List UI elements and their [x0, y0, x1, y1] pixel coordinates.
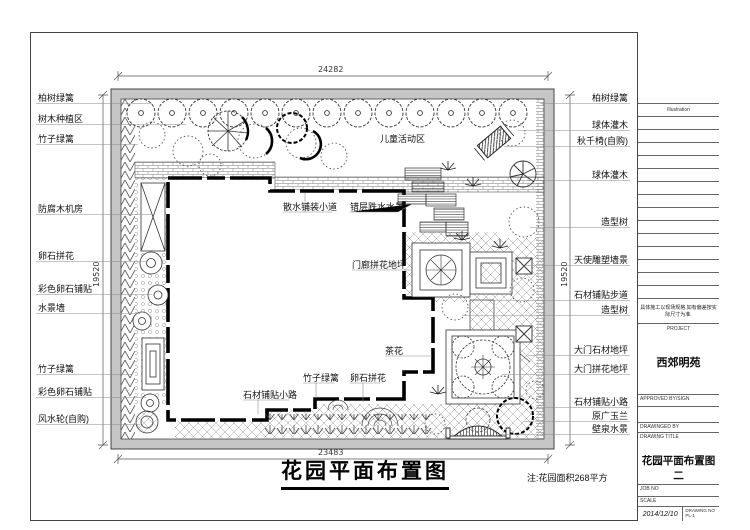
- construction-note: 具体施工以现场规格,如有偏差按实际尺寸为准.: [638, 299, 719, 324]
- illustration-label: Illustration: [638, 104, 719, 117]
- plan-label: 石材铺贴小路: [243, 390, 297, 400]
- project-name: 西郊明苑: [638, 354, 719, 370]
- drawing-no-value: PL-1: [685, 513, 695, 518]
- right-label: 石材铺贴小路: [574, 397, 628, 407]
- drawing-no-cell: DRAWING NO PL-1: [683, 507, 719, 521]
- right-label: 球体灌木: [592, 120, 628, 130]
- dim-right: 19520: [560, 262, 569, 287]
- plan-label: 门廊拼花地坪: [352, 260, 406, 270]
- area-note: 注:花园面积268平方: [527, 471, 608, 484]
- approved-by-label: APPROVED BY/SIGN: [638, 395, 719, 407]
- left-label: 水景墙: [38, 303, 65, 313]
- date-drawingno-row: 2014/12/10 DRAWING NO PL-1: [638, 507, 719, 521]
- left-label: 树木种植区: [38, 114, 83, 124]
- right-label: 造型树: [601, 305, 628, 315]
- left-label: 风水轮(自购): [38, 414, 89, 424]
- left-label: 竹子绿篱: [38, 134, 74, 144]
- sheet-border: [30, 32, 719, 521]
- left-label: 卵石拼花: [38, 251, 74, 261]
- right-label: 原广玉兰: [592, 411, 628, 421]
- right-label: 柏树绿篱: [592, 93, 628, 103]
- drawing-sheet: 柏树绿篱 树木种植区 竹子绿篱 防腐木机房 卵石拼花 彩色卵石铺贴 水景墙 竹子…: [0, 0, 750, 530]
- right-label: 造型树: [601, 217, 628, 227]
- project-cell: PROJECT 西郊明苑: [638, 324, 719, 395]
- right-label: 壁泉水景: [592, 424, 628, 434]
- scale-label: SCALE: [638, 497, 719, 507]
- right-label: 秋千椅(自购): [577, 136, 628, 146]
- right-label: 大门拼花地坪: [574, 364, 628, 374]
- dim-left: 19520: [92, 262, 101, 287]
- left-label: 防腐木机房: [38, 204, 83, 214]
- plan-label: 茶花: [385, 346, 403, 356]
- left-label: 彩色卵石铺贴: [38, 387, 92, 397]
- drawn-by-label: DRAWINGED BY: [638, 423, 719, 433]
- left-label: 柏树绿篱: [38, 93, 74, 103]
- play-area-label: 儿童活动区: [380, 134, 425, 144]
- right-label: 石材铺贴步道: [574, 290, 628, 300]
- dim-top: 24282: [318, 65, 343, 74]
- right-label: 天使雕塑墙景: [574, 255, 628, 265]
- approved-by-value: [638, 407, 719, 423]
- plan-label: 卵石拼花: [350, 373, 386, 383]
- job-no-label: JOB NO: [638, 485, 719, 497]
- title-block-blank: [638, 32, 719, 104]
- page-title: 花园平面布置图: [281, 455, 449, 490]
- left-label: 彩色卵石铺贴: [38, 284, 92, 294]
- drawing-title-label: DRAWING TITLE: [638, 433, 719, 441]
- right-label: 球体灌木: [592, 170, 628, 180]
- plan-label: 散水铺装小道: [283, 202, 337, 212]
- drawing-title-cell: DRAWING TITLE 花园平面布置图二: [638, 433, 719, 485]
- right-label: 大门石材地坪: [574, 345, 628, 355]
- plan-label: 竹子绿篱: [303, 373, 339, 383]
- project-label: PROJECT: [638, 324, 719, 332]
- date-value: 2014/12/10: [638, 507, 683, 521]
- left-label: 竹子绿篱: [38, 364, 74, 374]
- drawing-title: 花园平面布置图二: [638, 453, 719, 483]
- plan-label: 错层跌水水景: [350, 202, 404, 212]
- title-block: Illustration 具体施工以现场规格,如有偏差按实际尺寸为准. PROJ…: [637, 32, 719, 521]
